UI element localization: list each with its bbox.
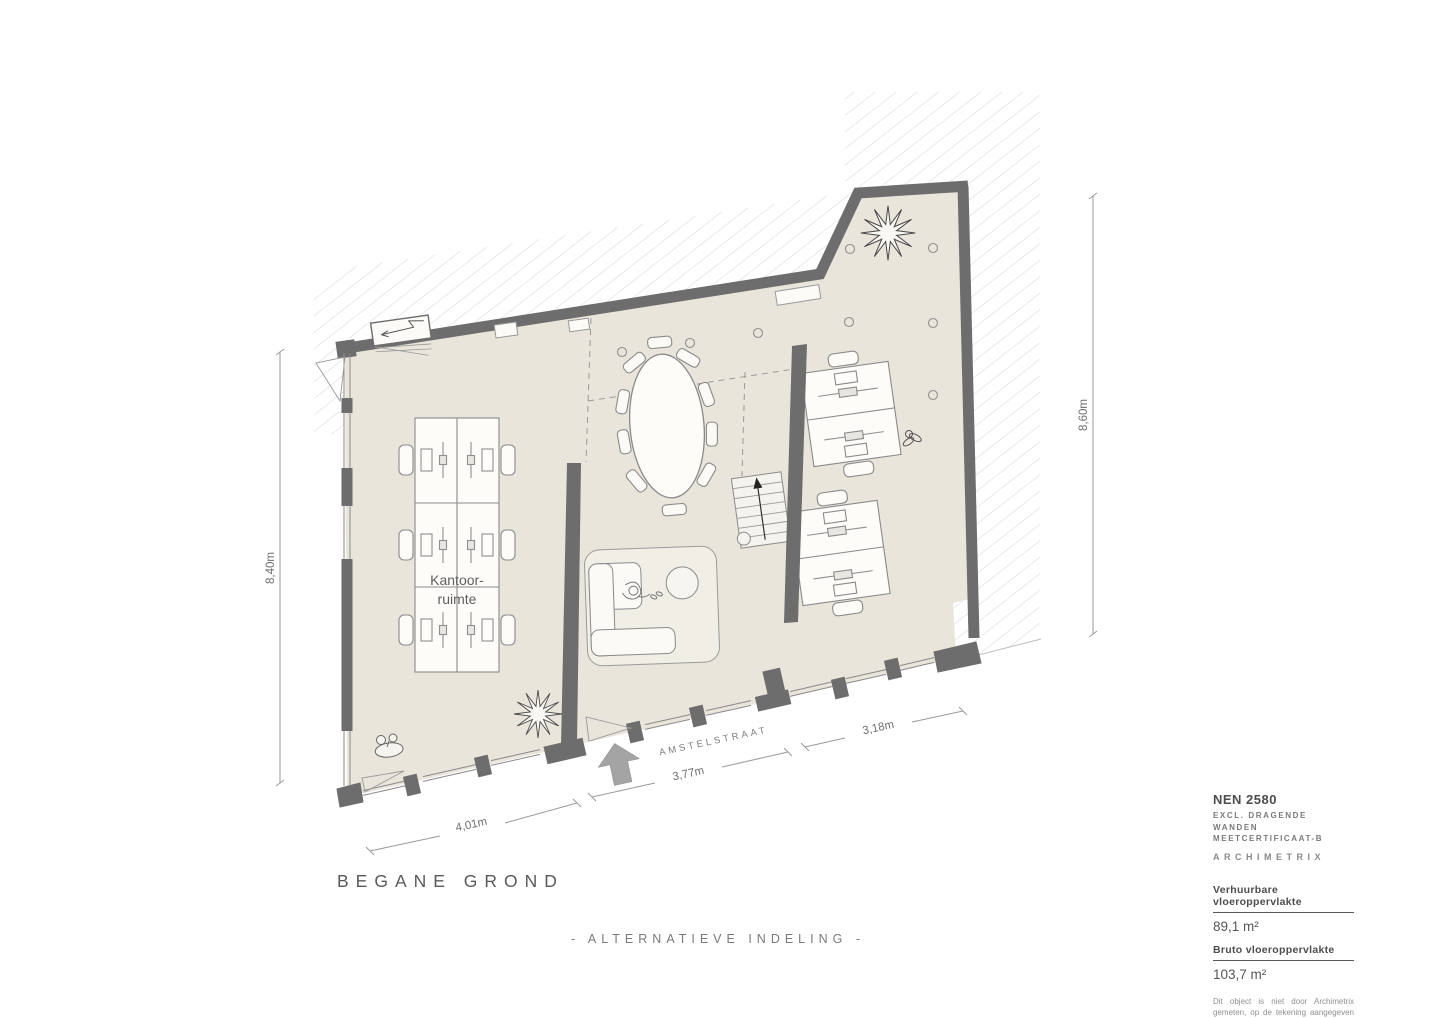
legend-note-line2: MEETCERTIFICAAT-B [1213, 833, 1354, 845]
legend-rule [1213, 912, 1354, 913]
dimension-bottom-middle-label: 3,77m [671, 765, 705, 783]
side-table [666, 566, 699, 599]
legend-note-line1: EXCL. DRAGENDE WANDEN [1213, 810, 1354, 833]
desk-chair [399, 530, 413, 560]
measurement-legend: NEN 2580 EXCL. DRAGENDE WANDEN MEETCERTI… [1213, 792, 1354, 1018]
street-name-label: AMSTELSTRAAT [658, 725, 769, 759]
plan-title: BEGANE GROND [337, 871, 564, 891]
plan-subtitle: - ALTERNATIEVE INDELING - [571, 932, 865, 946]
floor-plan-sheet: 8,40m 8,60m 4,01m 3,77m 3,18m AMSTELSTRA… [0, 0, 1440, 1018]
lounge-area [584, 546, 720, 667]
dimension-bottom-right-label: 3,18m [861, 719, 895, 737]
desk-chair [501, 615, 515, 645]
gross-area-value: 103,7 m² [1213, 967, 1354, 982]
legend-rule [1213, 960, 1354, 961]
staircase [729, 472, 791, 549]
desk-chair [399, 445, 413, 475]
office-desk-block [399, 418, 515, 672]
desk-chair [501, 530, 515, 560]
rentable-area-label: Verhuurbare vloeroppervlakte [1213, 884, 1354, 908]
desk-chair [399, 615, 413, 645]
dimension-left-label: 8,40m [265, 552, 277, 584]
legend-disclaimer: Dit object is niet door Archimetrix geme… [1213, 996, 1354, 1018]
legend-standard: NEN 2580 [1213, 792, 1354, 807]
desk-chair [501, 445, 515, 475]
rentable-area-value: 89,1 m² [1213, 919, 1354, 934]
legend-brand: ARCHIMETRIX [1213, 852, 1354, 862]
entrance-arrow-icon [594, 739, 644, 788]
room-label-line2: ruimte [438, 591, 477, 607]
room-label-line1: Kantoor- [430, 572, 484, 588]
dimension-right-label: 8,60m [1078, 399, 1090, 431]
gross-area-label: Bruto vloeroppervlakte [1213, 944, 1354, 956]
dimension-bottom-left-label: 4,01m [454, 816, 488, 834]
